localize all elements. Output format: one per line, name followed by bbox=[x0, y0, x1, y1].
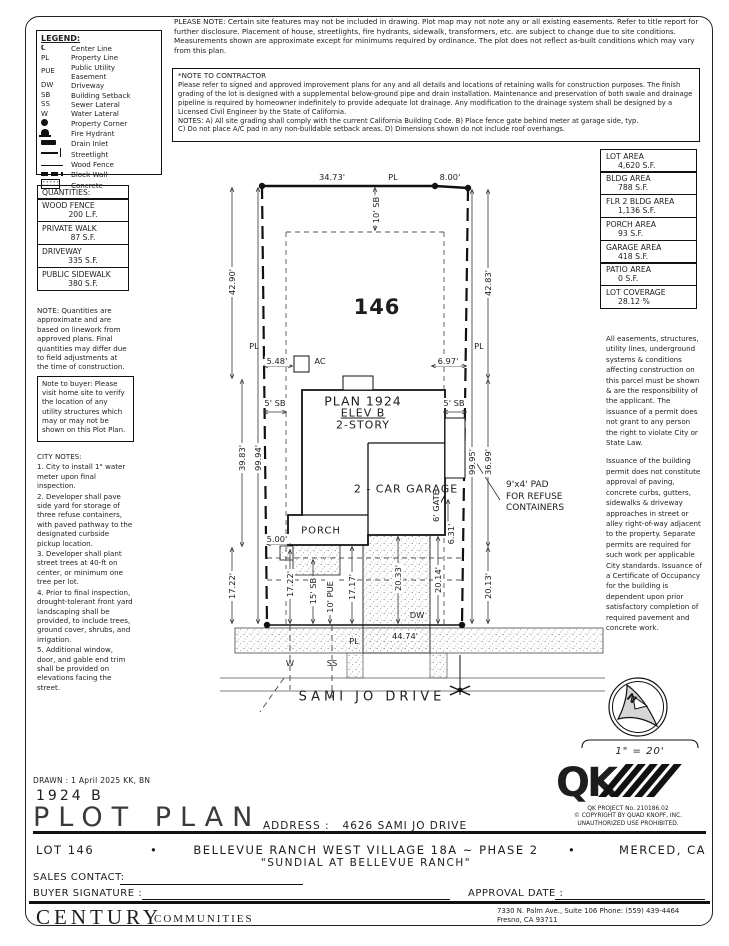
dim-front-width: 44.74' bbox=[390, 631, 420, 641]
north-arrow-compass bbox=[607, 676, 669, 738]
driveway-label: DW bbox=[410, 610, 425, 620]
approval-date-label: APPROVAL DATE : bbox=[468, 888, 563, 899]
pue-symbol: PUE bbox=[41, 67, 71, 76]
dim-porch-offset: 5.00' bbox=[265, 534, 290, 544]
property-corner-icon bbox=[41, 119, 48, 126]
legend-item: PUE Public Utility Easement bbox=[41, 63, 157, 81]
legend-item: W Water Lateral bbox=[41, 109, 157, 118]
city-notes-title: CITY NOTES: bbox=[37, 452, 133, 461]
buyer-signature-label: BUYER SIGNATURE : bbox=[33, 888, 142, 899]
dim-right-front-outer: 20.13' bbox=[483, 571, 493, 601]
city-note: 3. Developer shall plant street trees at… bbox=[37, 549, 133, 587]
area-summary-panel: LOT AREA 4,620 S.F. BLDG AREA 788 S.F. F… bbox=[600, 150, 697, 309]
legend-title: LEGEND: bbox=[41, 34, 157, 43]
pl-label-right: PL bbox=[474, 341, 484, 351]
quantities-panel: QUANTITIES: WOOD FENCE 200 L.F. PRIVATE … bbox=[37, 186, 129, 291]
approval-date-line bbox=[555, 899, 705, 900]
city-note: 2. Developer shall pave side yard for st… bbox=[37, 492, 133, 548]
setback-symbol: SB bbox=[41, 91, 71, 100]
legend-item: Streetlight bbox=[41, 148, 157, 160]
quantity-item: WOOD FENCE 200 L.F. bbox=[37, 198, 129, 222]
scale-label: 1" = 20' bbox=[580, 746, 700, 757]
fire-hydrant-icon bbox=[41, 129, 49, 136]
dim-right-mid: 36.99' bbox=[483, 447, 493, 477]
legend-item: Drain Inlet bbox=[41, 139, 157, 148]
dim-ac-right: 6.97' bbox=[436, 356, 461, 366]
quantity-item: DRIVEWAY 335 S.F. bbox=[37, 244, 129, 268]
buyer-note-box: Note to buyer: Please visit home site to… bbox=[37, 376, 134, 442]
wood-fence-icon bbox=[41, 165, 63, 167]
drain-inlet-icon bbox=[41, 140, 56, 145]
sheet-title: PLOT PLAN bbox=[33, 802, 261, 833]
property-line-symbol: PL bbox=[41, 54, 71, 63]
dim-side-sb-right: 5' SB bbox=[441, 398, 466, 408]
lot-number: 146 bbox=[354, 295, 401, 319]
sales-contact-label: SALES CONTACT: bbox=[33, 872, 124, 883]
driveway-symbol: DW bbox=[41, 81, 71, 90]
legend-item: Block Wall bbox=[41, 170, 157, 179]
water-lateral-label: W bbox=[286, 658, 294, 668]
dim-front-inner: 17.22' bbox=[285, 569, 295, 599]
footer-rule bbox=[29, 901, 710, 904]
area-item: LOT AREA 4,620 S.F. bbox=[600, 149, 697, 173]
garage-label: 2 - CAR GARAGE bbox=[354, 483, 458, 496]
builder-address-line1: 7330 N. Palm Ave., Suite 106 Phone: (559… bbox=[497, 907, 709, 916]
dim-walk-depth: 17.17' bbox=[347, 572, 357, 602]
buyer-signature-line bbox=[142, 899, 450, 900]
refuse-pad-note: 9'x4' PAD FOR REFUSE CONTAINERS bbox=[506, 480, 564, 515]
legend-item: Fire Hydrant bbox=[41, 129, 157, 139]
dim-drive-depth: 20.33' bbox=[393, 563, 403, 593]
divider-rule bbox=[33, 831, 706, 834]
bullet-separator: • bbox=[150, 843, 158, 857]
builder-address-line2: Fresno, CA 93711 bbox=[497, 916, 709, 925]
city-note: 4. Prior to final inspection, drought-to… bbox=[37, 588, 133, 644]
plan-stories: 2-STORY bbox=[336, 419, 390, 432]
please-note: PLEASE NOTE: Certain site features may n… bbox=[174, 17, 700, 55]
streetlight-icon bbox=[41, 148, 63, 157]
qk-logo: QK bbox=[556, 760, 615, 806]
block-wall-icon bbox=[41, 172, 63, 176]
contractor-note-body: Please refer to signed and approved impr… bbox=[178, 81, 694, 134]
quantity-item: PRIVATE WALK 87 S.F. bbox=[37, 221, 129, 245]
drawn-by-line: DRAWN : 1 April 2025 KK, BN bbox=[33, 776, 150, 785]
ac-unit-label: AC bbox=[314, 356, 325, 366]
area-item: GARAGE AREA 418 S.F. bbox=[600, 240, 697, 264]
area-item: BLDG AREA 788 S.F. bbox=[600, 171, 697, 195]
builder-address: 7330 N. Palm Ave., Suite 106 Phone: (559… bbox=[497, 907, 709, 924]
centerline-symbol: ℄ bbox=[41, 44, 71, 53]
subdivision-name: BELLEVUE RANCH WEST VILLAGE 18A ~ PHASE … bbox=[170, 843, 562, 857]
dim-pue: 10' PUE bbox=[325, 579, 335, 615]
legend-item: SS Sewer Lateral bbox=[41, 100, 157, 109]
legend-item: SB Building Setback bbox=[41, 91, 157, 100]
bullet-separator: • bbox=[568, 843, 576, 857]
legend-box: LEGEND: ℄ Center Line PL Property Line P… bbox=[36, 30, 162, 175]
dim-rear-seg2: 8.00' bbox=[438, 172, 463, 182]
dim-ac-left: 5.48' bbox=[265, 356, 290, 366]
dim-right-total: 99.95' bbox=[467, 447, 477, 477]
easement-note-2: Issuance of the building permit does not… bbox=[606, 456, 703, 633]
lot-label: LOT 146 bbox=[36, 843, 94, 857]
area-item: PORCH AREA 93 S.F. bbox=[600, 217, 697, 241]
easement-note-1: All easements, structures, utility lines… bbox=[606, 334, 703, 448]
area-item: FLR 2 BLDG AREA 1,136 S.F. bbox=[600, 194, 697, 218]
dim-rear-seg1: 34.73' bbox=[317, 172, 347, 182]
dim-left-mid: 39.83' bbox=[237, 443, 247, 473]
legend-item: PL Property Line bbox=[41, 53, 157, 62]
city-state: MERCED, CA bbox=[590, 843, 706, 857]
quantities-note: NOTE: Quantities are approximate and are… bbox=[37, 306, 131, 372]
easement-notes: All easements, structures, utility lines… bbox=[606, 334, 703, 641]
dim-front-setback: 15' SB bbox=[308, 576, 318, 606]
qk-credits: QK PROJECT No. 210186.02 © COPYRIGHT BY … bbox=[550, 806, 706, 828]
contractor-note-title: *NOTE TO CONTRACTOR bbox=[178, 72, 694, 81]
sewer-lateral-label: SS bbox=[327, 658, 338, 668]
legend-item: Wood Fence bbox=[41, 160, 157, 169]
legend-item: DW Driveway bbox=[41, 81, 157, 90]
builder-name: CENTURY bbox=[36, 905, 162, 930]
dim-right-front-inner: 20.14' bbox=[433, 565, 443, 595]
sales-contact-line bbox=[120, 884, 303, 885]
dim-rear-setback: 10' SB bbox=[371, 195, 381, 225]
qk-logo-stripes bbox=[612, 764, 668, 797]
pl-label-left: PL bbox=[249, 341, 259, 351]
area-item: LOT COVERAGE 28.12 % bbox=[600, 285, 697, 309]
qk-copyright: © COPYRIGHT BY QUAD KNOPF, INC. bbox=[550, 813, 706, 820]
dim-left-total: 99.94' bbox=[253, 443, 263, 473]
plot-plan-sheet: LEGEND: ℄ Center Line PL Property Line P… bbox=[0, 0, 729, 946]
legend-item: ℄ Center Line bbox=[41, 44, 157, 53]
dim-side-sb-left: 5' SB bbox=[262, 398, 287, 408]
community-name: "SUNDIAL AT BELLEVUE RANCH" bbox=[170, 857, 562, 869]
pl-label-top: PL bbox=[388, 172, 398, 182]
pl-label-bottom: PL bbox=[349, 636, 359, 646]
plot-drawing: 34.73' PL 8.00' 42.90' 39.83' 99.94' 17.… bbox=[180, 150, 610, 762]
city-note: 5. Additional window, door, and gable en… bbox=[37, 645, 133, 692]
sewer-symbol: SS bbox=[41, 100, 71, 109]
dim-left-front: 17.22' bbox=[227, 571, 237, 601]
dim-gate-offset: 6.31' bbox=[446, 522, 456, 547]
dim-left-upper: 42.90' bbox=[227, 267, 237, 297]
dim-right-upper: 42.83' bbox=[483, 268, 493, 298]
porch-label: PORCH bbox=[301, 526, 341, 537]
contractor-note-box: *NOTE TO CONTRACTOR Please refer to sign… bbox=[172, 68, 700, 142]
city-note: 1. City to install 1" water meter upon f… bbox=[37, 462, 133, 490]
street-name: SAMI JO DRIVE bbox=[299, 690, 446, 705]
legend-item: Property Corner bbox=[41, 119, 157, 129]
quantity-item: PUBLIC SIDEWALK 380 S.F. bbox=[37, 267, 129, 291]
builder-suffix: COMMUNITIES bbox=[154, 913, 254, 925]
city-notes: CITY NOTES: 1. City to install 1" water … bbox=[37, 452, 133, 693]
qk-unauthorized: UNAUTHORIZED USE PROHIBITED. bbox=[550, 821, 706, 828]
area-item: PATIO AREA 0 S.F. bbox=[600, 262, 697, 286]
water-symbol: W bbox=[41, 110, 71, 119]
